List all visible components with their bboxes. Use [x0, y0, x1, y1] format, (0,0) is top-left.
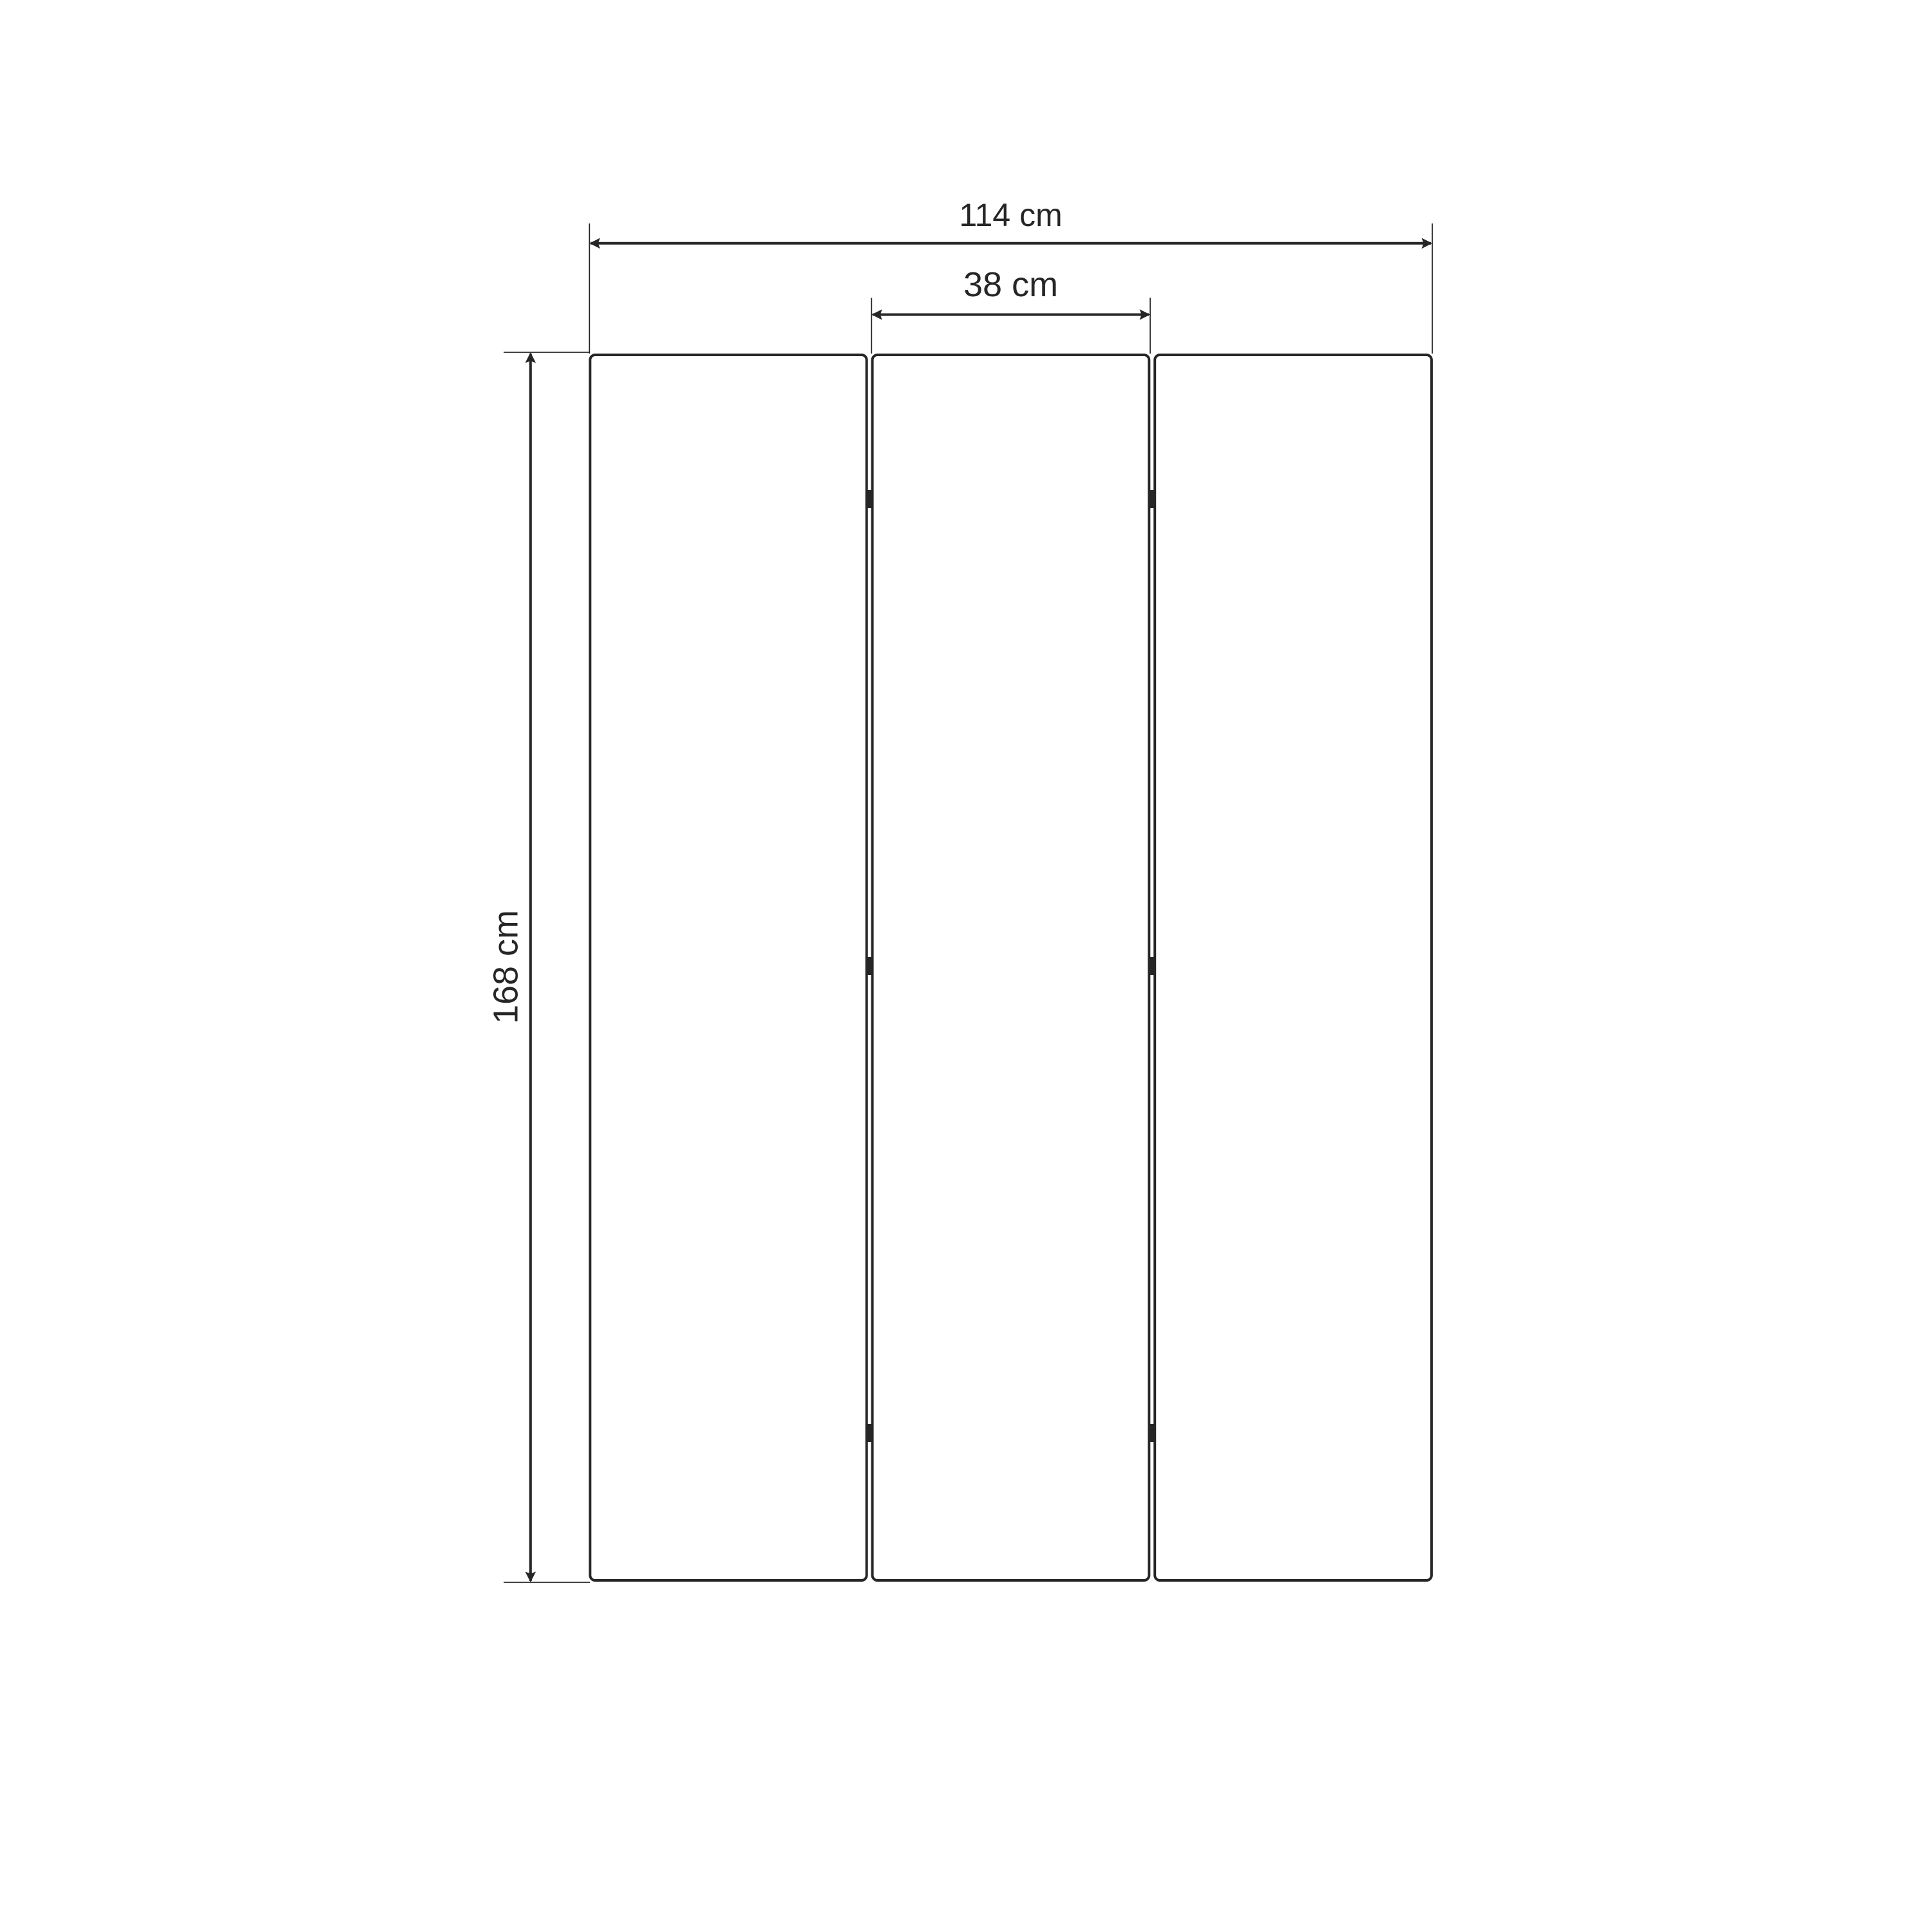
svg-text:168 cm: 168 cm [487, 910, 526, 1024]
svg-text:114 cm: 114 cm [959, 197, 1062, 233]
svg-text:38 cm: 38 cm [963, 265, 1058, 304]
